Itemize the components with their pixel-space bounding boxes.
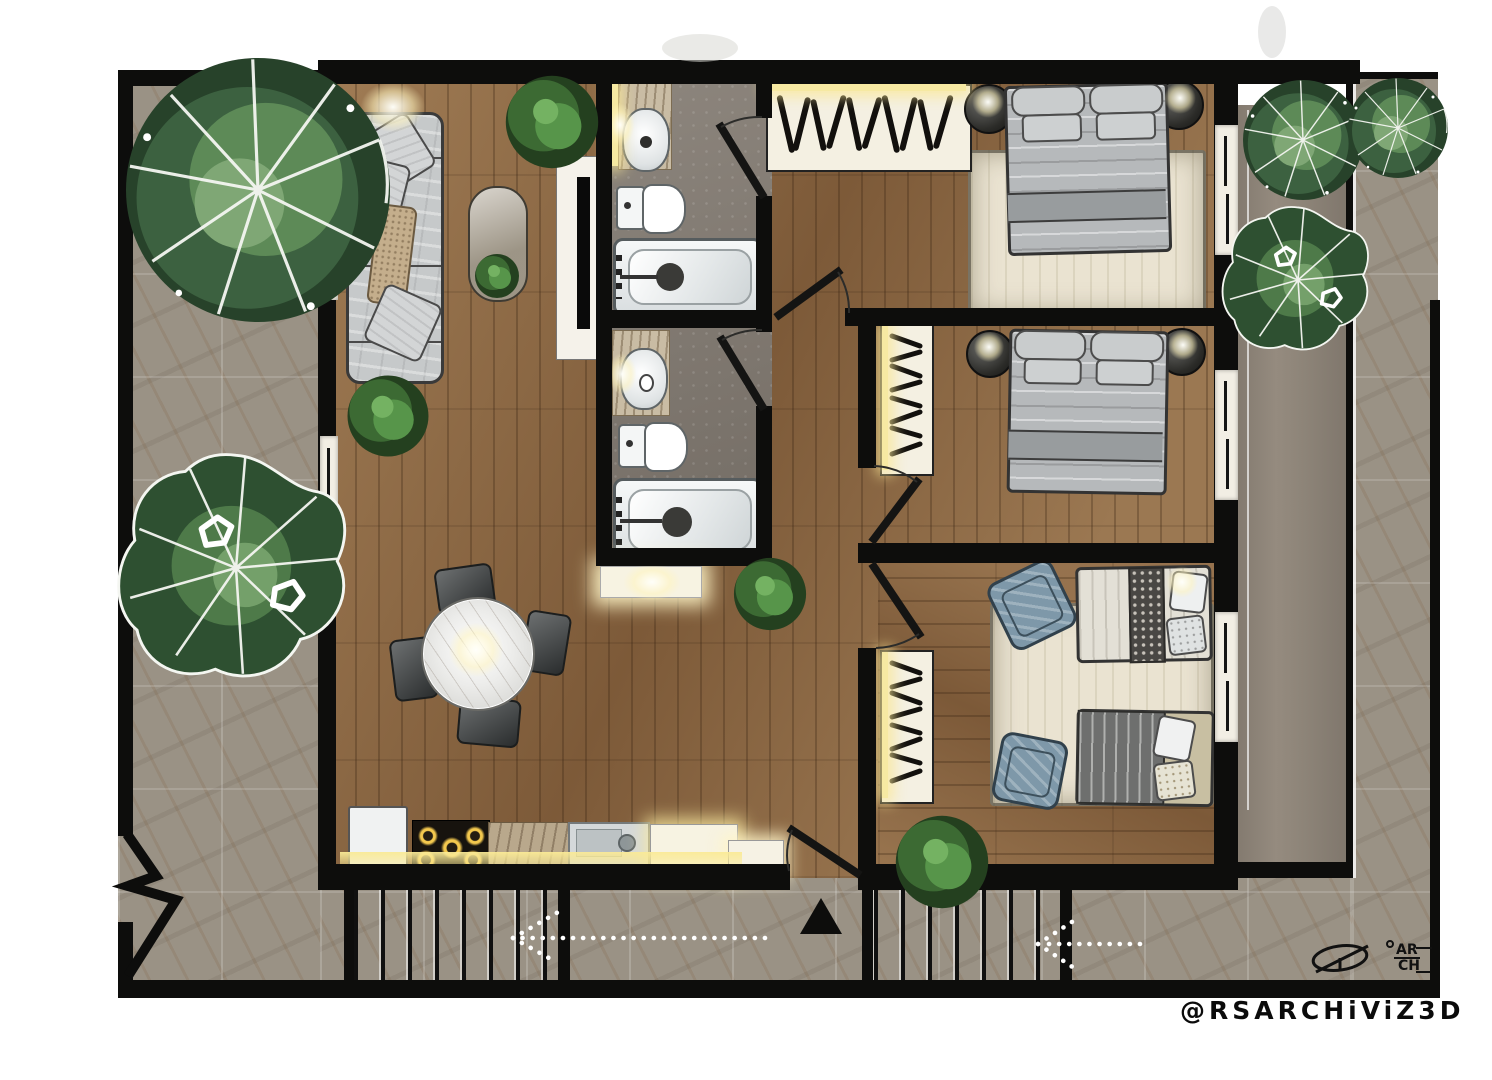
wall-top-path [1360, 72, 1438, 79]
bathroom2-sink [620, 348, 668, 410]
hall-lit-console [600, 566, 702, 598]
hangers-icon [882, 326, 928, 470]
burner [465, 826, 485, 846]
bed-fold [1008, 189, 1167, 223]
bedroom3-single-bed [1075, 565, 1213, 663]
stone-path-right [1352, 74, 1438, 996]
staircase-left [352, 888, 560, 986]
wall-bath-bottom [596, 548, 772, 566]
wall-bed1-divider [845, 308, 1238, 326]
balcony-glass-edge [1353, 84, 1356, 878]
wall-house-bottom-right [858, 864, 1238, 890]
wall-hall-column-a [858, 326, 876, 468]
staircase-right [872, 888, 1062, 986]
bedroom1-double-bed [1004, 82, 1172, 256]
tv-screen [577, 177, 590, 329]
bedroom3-wardrobe-light [882, 652, 888, 798]
bedroom3-wardrobe [880, 650, 934, 804]
bathroom1-sink [622, 108, 670, 172]
patio-left-floor [118, 70, 320, 996]
bathtub-drain [662, 507, 692, 537]
bedroom2-wardrobe [880, 324, 934, 476]
knit-throw [1128, 567, 1166, 664]
faucet [618, 834, 636, 852]
burner [418, 826, 438, 846]
wall-bath-right-c [756, 406, 772, 566]
bathroom2-toilet [618, 422, 684, 468]
wall-top-main [318, 60, 1360, 84]
bedroom3-single-bed [1075, 709, 1215, 807]
entry-triangle-marker [800, 898, 842, 934]
staircase-left-frame [558, 886, 570, 986]
watermark-handle: @RSARCHiViZ3D [1180, 996, 1464, 1025]
bathroom1-bathtub [613, 238, 763, 316]
balcony-floor [1237, 105, 1349, 878]
wall-bath-right-a [756, 80, 772, 118]
wall-balcony-right [1346, 84, 1353, 878]
balcony-glass-reflection [1247, 110, 1249, 810]
bedroom3-armchair [990, 730, 1070, 812]
fridge [348, 806, 408, 872]
bedroom1-wardrobe [766, 84, 972, 172]
wall-balcony-bottom [1237, 862, 1353, 878]
bedroom2-double-bed [1007, 329, 1170, 496]
bathroom1-toilet [616, 184, 682, 230]
wall-patio-top [118, 70, 318, 86]
wall-right-outer [1430, 300, 1440, 984]
wall-hall-column-b [858, 648, 876, 864]
bedroom2-wardrobe-light [882, 326, 888, 470]
wall-bath-divider [596, 310, 772, 328]
render-smudge [1258, 6, 1286, 58]
bed-fold [1008, 430, 1163, 463]
wall-patio-left-upper [118, 70, 133, 836]
bed-duvet [1076, 710, 1166, 806]
floor-plan-canvas: AR CH @RSARCHiViZ3D [0, 0, 1492, 1080]
burner [441, 837, 463, 859]
wall-bed2-bed3-divider [858, 543, 1238, 563]
bathtub-taps [616, 255, 622, 299]
bathtub-taps [616, 497, 622, 545]
wall-house-bottom-left [318, 864, 790, 890]
kitchen-sink [568, 822, 650, 866]
wall-patio-left-lower [118, 922, 133, 984]
hangers-icon [768, 86, 966, 166]
staircase-right-frame [1060, 886, 1072, 986]
staircase-right-frame [862, 886, 873, 986]
bedroom2-nightstand [966, 330, 1014, 378]
hangers-icon [882, 652, 928, 798]
bedroom1-wardrobe-light [768, 84, 966, 91]
bathtub-drain [656, 263, 684, 291]
bathroom1-vanity-light [612, 84, 618, 166]
living-oval-rug [468, 186, 528, 302]
dining-table [421, 597, 535, 711]
staircase-left-frame [344, 886, 354, 986]
render-smudge [662, 34, 738, 62]
